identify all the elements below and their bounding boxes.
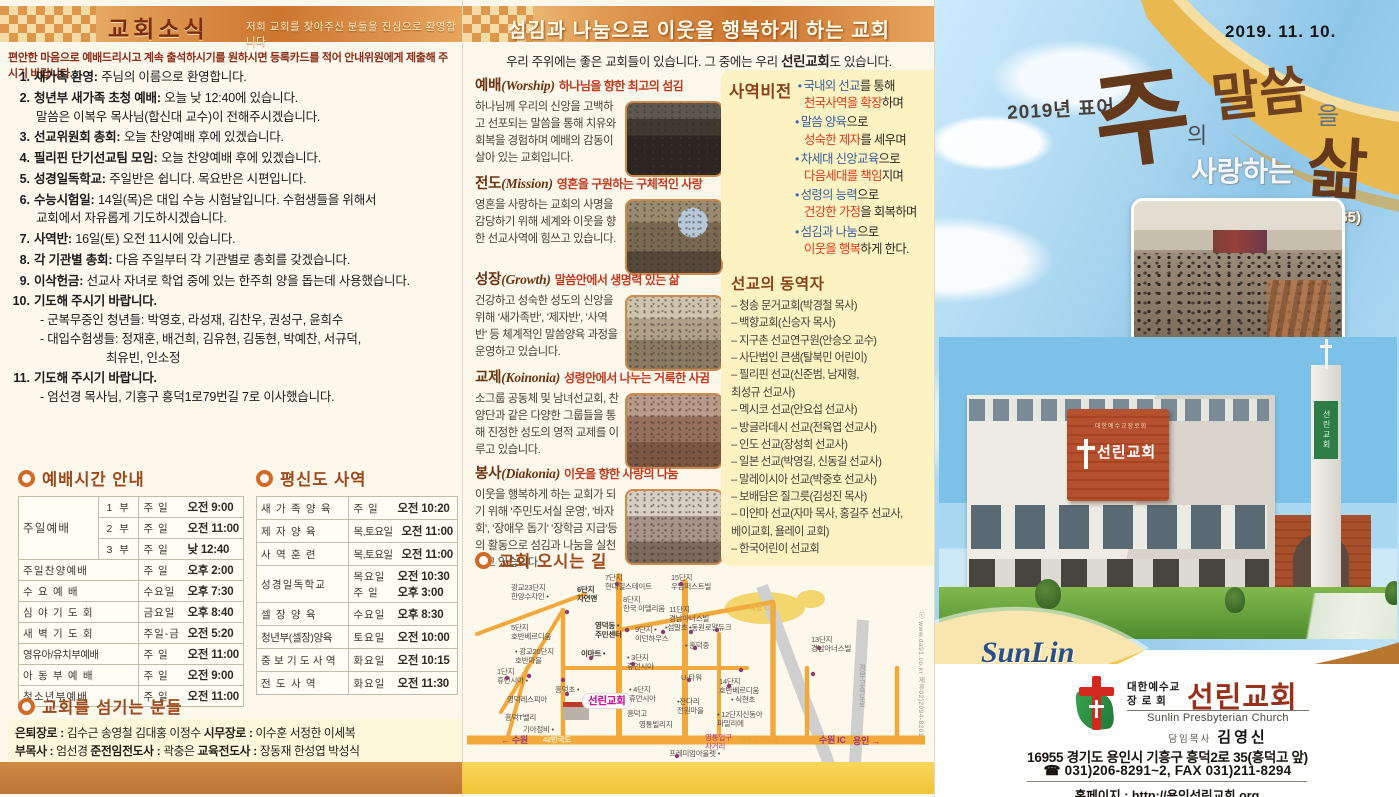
map-label: 11단지 경남아너스빌: [669, 606, 709, 623]
section-worship: 예배(Worship)하나님을 향한 최고의 섬김 하나님께 우리의 신앙을 고…: [475, 74, 723, 179]
growth-photo: [625, 295, 723, 371]
map-label: • 12단지신동아 파밀리에: [717, 711, 762, 728]
partner-item: – 청송 문거교회(박경철 목사): [731, 298, 937, 315]
map-label: 흥덕T밸리: [505, 714, 536, 723]
table-row: 아 동 부 예 배 주 일오전 9:00: [19, 665, 244, 686]
partner-item: – 한국어린이 선교회: [731, 541, 937, 558]
partner-item: – 백향교회(신승자 목사): [731, 315, 937, 332]
cross-icon: [1320, 339, 1332, 369]
announcement-item: 2.청년부 새가족 초청 예배: 오늘 낮 12:40에 있습니다. 말씀은 이…: [10, 89, 458, 127]
denomination-line2: 장 로 회: [1127, 694, 1180, 708]
partner-item: – 지구촌 선교연구원(안승오 교수): [731, 333, 937, 350]
pastor-name: 김영신: [1217, 729, 1267, 746]
slogan-particle: 의: [1187, 118, 1207, 150]
map-label: 경부고속도로: [857, 664, 866, 708]
map-label: • 식현초: [731, 696, 755, 705]
partners-box: 선교의 동역자 – 청송 문거교회(박경철 목사) – 백향교회(신승자 목사)…: [721, 264, 943, 566]
welcome-text: 저희 교회를 찾아주신 분들을 진심으로 환영합니다: [246, 19, 462, 49]
map-label: 9단지 • 이던하우스: [635, 626, 668, 643]
table-row: 수 요 예 배 수요일오후 7:30: [19, 581, 244, 602]
map-label-church: 선린교회: [583, 694, 630, 708]
map-label: 14단지 호반베르디움: [719, 678, 759, 695]
section-koinonia: 교제(Koinonia)성령안에서 나누는 거룩한 사귐 소그룹 공동체 및 남…: [475, 366, 723, 471]
partners-title: 선교의 동역자: [731, 272, 937, 294]
news-title: 교회소식: [108, 10, 209, 44]
map-label: 이마트 •: [581, 650, 605, 659]
table-row: 성경일독학교 목요일오전 10:30 주 일오후 3:00: [257, 566, 458, 603]
partner-item: – 말레이시아 선교(박중호 선교사): [731, 472, 937, 489]
announcement-list: 1.새가족 환영: 주님의 이름으로 환영합니다. 2.청년부 새가족 초청 예…: [10, 68, 458, 409]
partner-item: – 미얀마 선교(자마 목사, 홍길주 선교사, 베이교회, 욜레이 교회): [731, 506, 937, 541]
mid-header-title: 섬김과 나눔으로 이웃을 행복하게 하는 교회: [463, 14, 935, 43]
map-label: 8단지 한국 아델리움: [623, 596, 665, 613]
map-label: •동원로얄듀크: [689, 624, 731, 633]
ring-icon: [18, 698, 35, 715]
lay-ministry-title: 평신도 사역: [280, 466, 366, 490]
church-building-photo: 대한예수교장로회 선린교회 선린교회: [939, 337, 1397, 639]
map-label: 수원 IC: [819, 735, 846, 745]
map-label: 7단지 현대힐스테이트: [605, 574, 652, 591]
table-row: 제 자 양 육 목,토요일오전 11:00: [257, 520, 458, 543]
servants-section: 교회를 섬기는 분들: [18, 694, 183, 718]
map-label: • 3단지 휴먼시아: [627, 654, 654, 671]
directions-map: 7단지 현대힐스테이트 15단지 우남퍼스트빌 광교23단지 한양수자인 • 6…: [467, 572, 925, 764]
partner-item: – 사단법인 큰샘(탈북민 어린이): [731, 350, 937, 367]
map-label: 프레미엄아울렛 •: [669, 750, 720, 759]
worship-times-table: 주일예배 1 부 주 일오전 9:00 2 부 주 일오전 11:00 3 부 …: [18, 496, 244, 707]
announcement-item: 9.이삭헌금: 선교사 자녀로 학업 중에 있는 한주희 양을 돕는데 사용했습…: [10, 272, 458, 291]
map-label: U-타워: [681, 674, 702, 683]
map-label: 용인 →: [853, 736, 880, 746]
slogan-word-malsseum: 말씀: [1207, 47, 1310, 132]
checker-pattern: [0, 6, 96, 42]
map-label: 광교23단지 한양수자인 •: [511, 584, 549, 601]
map-label: •섬말초: [665, 624, 687, 633]
map-label: 영통빌리지: [639, 721, 672, 730]
church-homepage: 홈페이지 : http://용인선린교회.org: [1027, 781, 1307, 797]
table-row: 사 역 훈 련 목,토요일오전 11:00: [257, 543, 458, 566]
lay-ministry-section: 평신도 사역 새 가 족 양 육 주 일오전 10:20 제 자 양 육 목,토…: [256, 466, 458, 695]
announcement-item: 6.수능시험일: 14일(목)은 대입 수능 시험날입니다. 수험생들을 위해서…: [10, 191, 458, 229]
map-section-title: 교회 오시는 길: [475, 548, 607, 572]
table-row: 주일찬양예배 주 일오후 2:00: [19, 560, 244, 581]
announcement-item: 8.각 기관별 총회: 다음 주일부터 각 기관별로 총회를 갖겠습니다.: [10, 251, 458, 270]
map-label: 42번국도: [543, 736, 571, 745]
vision-title: 사역비전: [729, 78, 792, 102]
map-credit: ⓒ www.da91.co.kr 제휴02)2094-8201: [915, 612, 925, 737]
news-header-bar: 교회소식 저희 교회를 찾아주신 분들을 진심으로 환영합니다: [0, 6, 462, 42]
vision-box: 사역비전 •국내외 선교를 통해천국사역을 확장하며 •말씀 양육으로성숙한 제…: [721, 70, 943, 266]
map-label: 영덕동 • 주민센터: [595, 622, 622, 639]
ring-icon: [256, 470, 273, 487]
table-row: 주일예배 1 부 주 일오전 9:00: [19, 497, 244, 518]
partner-item: – 멕시코 선교(안요섭 선교사): [731, 402, 937, 419]
denomination-line1: 대한예수교: [1127, 680, 1180, 694]
congregation-photo: [1131, 198, 1345, 348]
table-row: 심 야 기 도 회 금요일오후 8:40: [19, 602, 244, 623]
announcement-item: 4.필리핀 단기선교팀 모임: 오늘 찬양예배 후에 있겠습니다.: [10, 149, 458, 168]
church-name-english: Sunlin Presbyterian Church: [1127, 710, 1309, 724]
map-label: 15단지 우남퍼스트빌: [671, 574, 711, 591]
tower-sign: 선린교회: [1314, 401, 1338, 459]
church-logo: [1075, 676, 1119, 732]
partner-item: – 방글라데시 선교(전육엽 선교사): [731, 420, 937, 437]
announcement-item: 11.기도해 주시기 바랍니다. - 엄선경 목사님, 기흥구 흥덕1로79번길…: [10, 369, 458, 407]
footer-strip-brown: [0, 762, 462, 794]
table-row: 전 도 사 역 화요일오전 11:30: [257, 672, 458, 695]
map-label: • 4단지 휴먼시아: [629, 686, 656, 703]
table-row: 새 벽 기 도 회 주일-금오전 5:20: [19, 623, 244, 644]
koinonia-photo: [625, 393, 723, 469]
partner-item: – 인도 선교(장성희 선교사): [731, 437, 937, 454]
mid-subtitle: 우리 주위에는 좋은 교회들이 있습니다. 그 중에는 우리 선린교회도 있습니…: [463, 50, 935, 70]
table-row: 영유아/유치부예배 주 일오전 11:00: [19, 644, 244, 665]
building-sign: 대한예수교장로회 선린교회: [1067, 409, 1169, 501]
map-label: 5단지 호반베르디움: [511, 624, 551, 641]
slogan-word-saranghaneun: 사랑하는: [1191, 150, 1294, 190]
map-label: •잔다리 전원마을: [677, 698, 704, 715]
footer-strip-yellow: [462, 762, 934, 794]
announcement-item: 3.선교위원회 총회: 오늘 찬양예배 후에 있겠습니다.: [10, 128, 458, 147]
map-label: • 광교20단지 호반마을: [515, 648, 554, 665]
announcement-item: 5.성경일독학교: 주일반은 쉽니다. 목요반은 시편입니다.: [10, 170, 458, 189]
announcement-item: 1.새가족 환영: 주님의 이름으로 환영합니다.: [10, 68, 458, 87]
table-row: 중 보 기 도 사 역 화요일오전 10:15: [257, 649, 458, 672]
map-label: 태광 CC: [749, 604, 775, 613]
ring-icon: [475, 552, 492, 569]
lay-ministry-table: 새 가 족 양 육 주 일오전 10:20 제 자 양 육 목,토요일오전 11…: [256, 496, 458, 695]
map-label: 6단지 자연앤: [577, 586, 597, 603]
pastor-label: 담임목사: [1168, 734, 1211, 745]
bell-tower: 선린교회: [1311, 365, 1341, 597]
table-row: 청년부(셀장)양육 토요일오전 10:00: [257, 626, 458, 649]
map-label: 1단지 휴먼시아 •: [497, 668, 528, 685]
announcement-item: 7.사역반: 16일(토) 오전 11시에 있습니다.: [10, 230, 458, 249]
worship-photo: [625, 101, 723, 177]
partner-item: – 보배담은 질그릇(김성진 목사): [731, 489, 937, 506]
worship-times-section: 예배시간 안내 주일예배 1 부 주 일오전 9:00 2 부 주 일오전 11…: [18, 466, 244, 707]
map-label: 13단지 경남아너스빌: [811, 636, 851, 653]
section-mission: 전도(Mission)영혼을 구원하는 구체적인 사랑 영혼을 사랑하는 교회의…: [475, 172, 723, 277]
map-label: 영덕레스피아: [507, 696, 547, 705]
table-row: 셀 장 양 육 수요일오후 8:30: [257, 603, 458, 626]
church-phone: ☎ 031)206-8291~2, FAX 031)211-8294: [935, 763, 1399, 779]
panel-intro: 섬김과 나눔으로 이웃을 행복하게 하는 교회 우리 주위에는 좋은 교회들이 …: [462, 0, 935, 797]
announcement-item: 10.기도해 주시기 바랍니다. - 군복무중인 청년들: 박영호, 라성재, …: [10, 292, 458, 367]
map-label: 흥덕고: [627, 710, 647, 719]
section-growth: 성장(Growth)말씀안에서 생명력 있는 삶 건강하고 성숙한 성도의 신앙…: [475, 268, 723, 373]
mission-photo: [625, 199, 723, 275]
diakonia-photo: [625, 489, 723, 565]
cross-icon: [1077, 439, 1095, 469]
partner-item: – 일본 선교(박영길, 신동길 선교사): [731, 454, 937, 471]
map-label: 기아정비 •: [523, 726, 554, 735]
bulletin-page: 교회소식 저희 교회를 찾아주신 분들을 진심으로 환영합니다 편안한 마음으로…: [0, 0, 1399, 797]
ring-icon: [18, 470, 35, 487]
church-info-block: 대한예수교 장 로 회 선린교회 Sunlin Presbyterian Chu…: [935, 664, 1399, 797]
table-row: 새 가 족 양 육 주 일오전 10:20: [257, 497, 458, 520]
map-label: 영통고가도로: [739, 736, 779, 745]
map-label: 흥덕초 •: [555, 686, 579, 695]
mid-header-bar: 섬김과 나눔으로 이웃을 행복하게 하는 교회: [463, 6, 935, 42]
map-label: • 흥덕중: [685, 642, 709, 651]
map-label: ← 수원: [501, 735, 528, 745]
issue-date: 2019. 11. 10.: [1225, 22, 1336, 42]
panel-news: 교회소식 저희 교회를 찾아주신 분들을 진심으로 환영합니다 편안한 마음으로…: [0, 0, 462, 797]
servants-title: 교회를 섬기는 분들: [42, 694, 183, 718]
partner-item: – 필리핀 선교(신준범, 남재형, 최성규 선교사): [731, 367, 937, 402]
panel-cover: 2019. 11. 10. 2019년 표어 주 의 말씀 을 사랑하는 삶 (…: [934, 0, 1399, 797]
worship-times-title: 예배시간 안내: [42, 466, 145, 490]
